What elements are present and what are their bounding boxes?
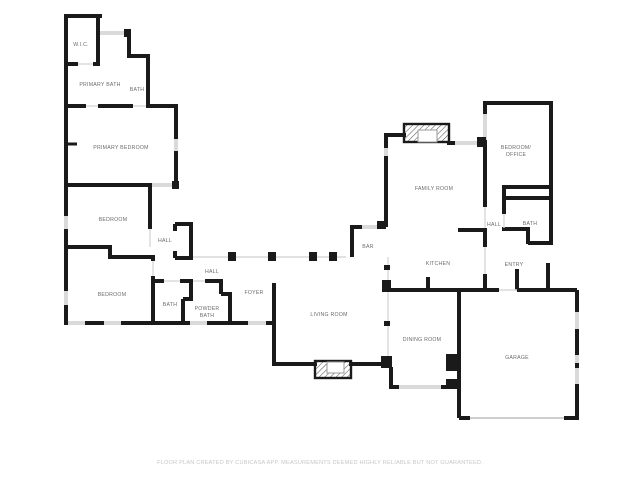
room-label-foyer: FOYER bbox=[244, 290, 263, 296]
room-label-living-room: LIVING ROOM bbox=[310, 312, 347, 318]
room-label-hall-3: HALL bbox=[487, 222, 501, 228]
room-label-bath-3: BATH bbox=[523, 221, 537, 227]
room-label-primary-bedroom: PRIMARY BEDROOM bbox=[93, 145, 148, 151]
room-label-bedroom-office-2: OFFICE bbox=[506, 152, 527, 158]
room-label-bar: BAR bbox=[362, 244, 373, 250]
room-label-bedroom-2: BEDROOM bbox=[98, 292, 127, 298]
room-labels: W.I.C. PRIMARY BATH BATH PRIMARY BEDROOM… bbox=[73, 42, 537, 361]
wall-posts bbox=[124, 29, 486, 387]
room-label-hall-2: HALL bbox=[205, 269, 219, 275]
room-label-bath-1: BATH bbox=[130, 87, 144, 93]
room-label-family-room: FAMILY ROOM bbox=[415, 186, 453, 192]
room-label-dining-room: DINING ROOM bbox=[403, 337, 442, 343]
floor-plan-canvas: W.I.C. PRIMARY BATH BATH PRIMARY BEDROOM… bbox=[0, 0, 640, 480]
room-label-bath-2: BATH bbox=[163, 302, 177, 308]
room-label-hall-1: HALL bbox=[158, 238, 172, 244]
floor-plan-page: W.I.C. PRIMARY BATH BATH PRIMARY BEDROOM… bbox=[0, 0, 640, 480]
room-label-garage: GARAGE bbox=[505, 355, 529, 361]
family-room-fireplace bbox=[404, 124, 449, 142]
room-label-bedroom-1: BEDROOM bbox=[99, 217, 128, 223]
room-label-powder-bath-2: BATH bbox=[200, 313, 214, 319]
room-label-entry: ENTRY bbox=[505, 262, 524, 268]
room-label-kitchen: KITCHEN bbox=[426, 261, 451, 267]
walls bbox=[64, 14, 577, 420]
room-label-primary-bath: PRIMARY BATH bbox=[79, 82, 120, 88]
living-room-fireplace bbox=[315, 361, 351, 378]
room-label-bedroom-office: BEDROOM/ bbox=[501, 145, 532, 151]
footer-disclaimer: FLOOR PLAN CREATED BY CUBICASA APP. MEAS… bbox=[157, 460, 483, 466]
room-label-powder-bath: POWDER bbox=[195, 306, 220, 312]
room-label-wic: W.I.C. bbox=[73, 42, 89, 48]
